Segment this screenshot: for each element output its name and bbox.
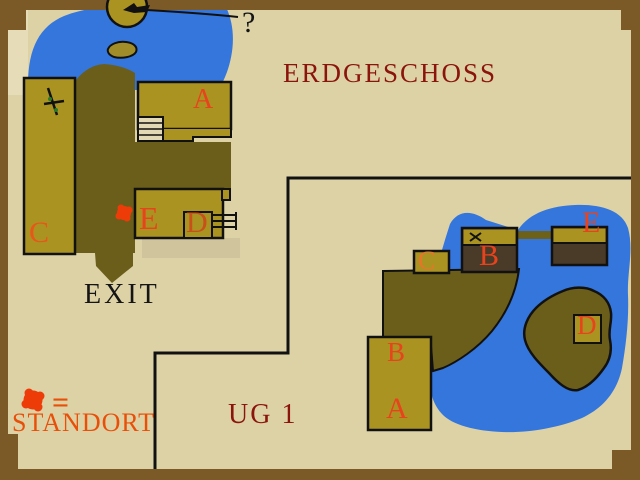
- bridge-bar: [517, 231, 553, 239]
- room-label-e-ground: E: [139, 202, 159, 234]
- room-label-e-basement: E: [582, 208, 600, 238]
- room-label-c-basement: C: [418, 248, 435, 274]
- room-label-d-ground: D: [186, 208, 208, 238]
- room-label-b-basement: B: [387, 339, 405, 366]
- game-map-screen[interactable]: ERDGESCHOSS ? EXIT A C E D UG 1 C B E B …: [0, 0, 640, 480]
- unknown-marker-label: ?: [242, 8, 255, 38]
- stairs-a-icon: [138, 117, 163, 141]
- building-e-tab: [222, 189, 230, 200]
- legend-standort-label: STANDORT: [12, 410, 155, 436]
- mystery-island: [107, 0, 147, 27]
- room-label-d-basement: D: [577, 312, 597, 339]
- room-label-a-basement: A: [386, 394, 408, 424]
- room-label-a-ground: A: [193, 86, 213, 114]
- basement-title: UG 1: [228, 401, 297, 429]
- room-label-c-ground: C: [29, 218, 49, 248]
- small-island: [108, 42, 137, 58]
- standort-marker-dot: [116, 205, 133, 222]
- room-label-b-entry-basement: B: [479, 241, 499, 271]
- shadow-under-building: [142, 238, 240, 258]
- ground-floor-title: ERDGESCHOSS: [283, 60, 497, 87]
- exit-label: EXIT: [84, 281, 160, 309]
- stairs-d-icon: [212, 212, 236, 230]
